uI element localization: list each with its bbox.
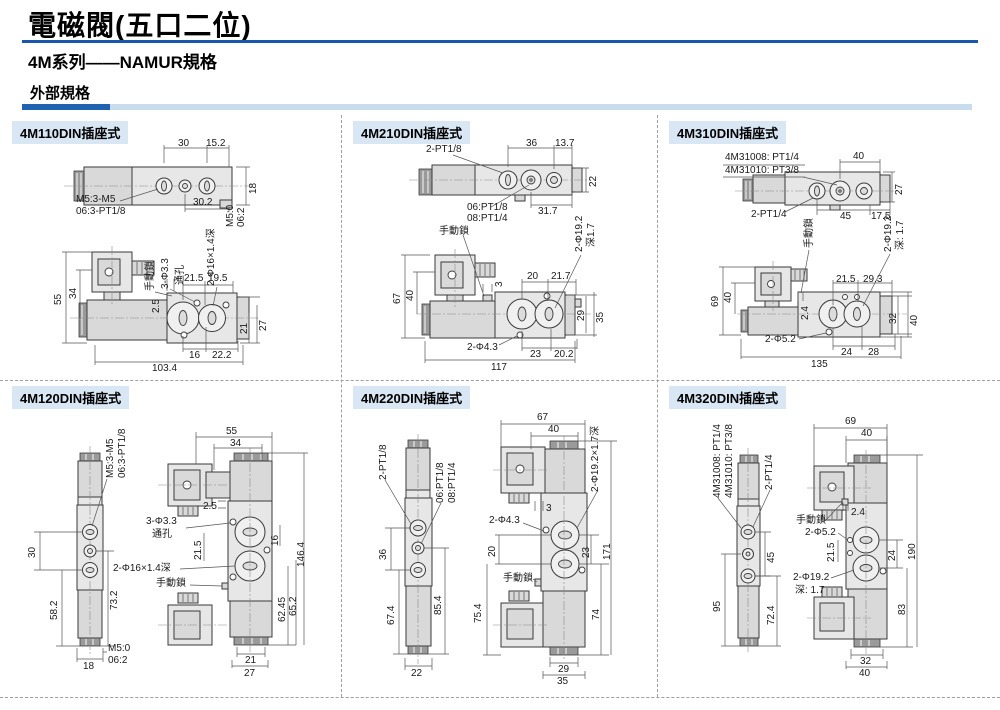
dim-label: 23 [582,547,592,558]
dim-label: 24 [888,550,898,561]
dim-label: 2.5 [203,502,217,512]
manual-override-label: 手動鎖 [805,218,815,248]
dim-label: 69 [711,296,721,307]
title-underline [22,40,978,43]
dim-label: 190 [908,543,918,560]
port-label: 08:PT1/4 [448,462,458,503]
technical-drawing-4m310 [657,115,1000,380]
dim-label: 19.5 [208,274,227,284]
hole-label: 3-Φ3.3 [161,258,171,289]
dim-label: 40 [859,669,870,679]
dim-label: 67 [537,413,548,423]
dim-label: 69 [845,417,856,427]
dim-label: 16 [189,351,200,361]
dim-label: 31.7 [538,207,557,217]
dim-label: 75.4 [474,604,484,623]
dim-label: 62.45 [278,597,288,622]
dim-label: 35 [596,312,606,323]
dim-label: 27 [895,184,905,195]
dim-label: 2.4 [801,306,811,320]
section-heading: 外部規格 [30,82,90,103]
dim-label: 58.2 [50,601,60,620]
dim-label: 27 [259,320,269,331]
dim-label: 18 [249,183,259,194]
port-label: 4M31008: PT1/4 [713,424,723,498]
port-label: 06:PT1/8 [467,203,508,213]
dim-label: 40 [861,429,872,439]
hole-label: 2-Φ5.2 [805,528,836,538]
dim-label: 2.5 [152,299,162,313]
dim-label: 73.2 [110,591,120,610]
section-underline [22,104,972,110]
grid-separator [0,697,1000,698]
port-label: 08:PT1/4 [467,214,508,224]
dim-label: 24 [841,348,852,358]
hole-label: 2-Φ5.2 [765,335,796,345]
dim-label: 18 [83,662,94,672]
dim-label: 3 [546,504,552,514]
dim-label: 13.7 [555,139,574,149]
port-label: M5:3-M5 [106,439,116,478]
dim-label: 67 [393,293,403,304]
hole-label: 2-Φ19.2 [884,216,894,252]
hole-label: 3-Φ3.3 [146,517,177,527]
panel-title: 4M220DIN插座式 [353,386,470,409]
dim-label: 21 [240,323,250,334]
dim-label: 117 [491,363,507,373]
panel-4m110: 4M110DIN插座式 30 15.2 18 30.2 M5:3-M5 06:3… [0,115,341,380]
panel-title: 4M210DIN插座式 [353,121,470,144]
dim-label: 30.2 [193,198,212,208]
technical-drawing-4m110 [0,115,341,380]
dim-label: 36 [379,549,389,560]
dim-label: 146.4 [297,542,307,567]
dim-label: 20 [488,546,498,557]
port-label: 2-PT1/4 [765,454,775,490]
dim-label: 22.2 [212,351,231,361]
technical-drawing-4m320 [657,380,1000,697]
dim-label: 103.4 [152,364,177,374]
dim-label: 40 [724,292,734,303]
dim-label: 36 [526,139,537,149]
dim-label: 95 [713,601,723,612]
port-label: 06:PT1/8 [436,462,446,503]
dim-label: 83 [898,604,908,615]
hole-label: 深1.7 [587,223,597,247]
hole-label: 深: 1.7 [795,586,824,596]
hole-label: 2-Φ4.3 [467,343,498,353]
series-subtitle: 4M系列——NAMUR規格 [28,48,217,73]
panel-4m310: 4M310DIN插座式 4M31008: PT1/4 4M31010: PT3/… [657,115,1000,380]
port-label: 4M31010: PT3/8 [725,424,735,498]
dim-label: 40 [406,290,416,301]
hole-label: 2-Φ16×1.4深 [113,564,171,574]
manual-override-label: 手動鎖 [146,261,156,291]
dim-label: 65.2 [289,597,299,616]
dim-label: 171 [603,543,613,560]
port-label: 2-PT1/8 [379,444,389,480]
dim-label: 67.4 [387,606,397,625]
dim-label: 34 [69,288,79,299]
port-label: 4M31010: PT3/8 [725,166,799,176]
dim-label: 23 [530,350,541,360]
dim-label: 85.4 [434,596,444,615]
hole-label: 深: 1.7 [896,221,906,250]
technical-drawing-4m210 [341,115,657,380]
dim-label: 30 [178,139,189,149]
dim-label: 55 [54,294,64,305]
dim-label: 40 [853,152,864,162]
dim-label: 2.4 [851,508,865,518]
port-label: 2-PT1/8 [426,145,462,155]
panel-title: 4M120DIN插座式 [12,386,129,409]
panel-4m120: 4M120DIN插座式 M5:3-M5 06:3-PT1/8 30 58.2 7… [0,380,341,697]
dim-label: 35 [557,677,568,687]
technical-drawing-4m220 [341,380,657,697]
dim-label: 34 [230,439,241,449]
dim-label: 16 [271,535,281,546]
panel-4m220: 4M220DIN插座式 2-PT1/8 06:PT1/8 08:PT1/4 36… [341,380,657,697]
dim-label: 72.4 [767,606,777,625]
dim-label: 21.5 [194,541,204,560]
port-label: 06:2 [237,208,247,227]
port-label: 4M31008: PT1/4 [725,153,799,163]
hole-label: 2-Φ19.2 [575,216,585,252]
dim-label: 135 [811,360,828,370]
dim-label: 45 [840,212,851,222]
dim-label: 20 [527,272,538,282]
manual-override-label: 手動鎖 [503,574,533,584]
dim-label: 20.2 [554,350,573,360]
dim-label: 21.7 [551,272,570,282]
dim-label: 55 [226,427,237,437]
dim-label: 32 [860,657,871,667]
dim-label: 30 [28,547,38,558]
dim-label: 29 [577,310,587,321]
hole-label: 2-Φ19.2×1.7深 [591,426,601,492]
dim-label: 28 [868,348,879,358]
port-label: 06:3-PT1/8 [76,207,125,217]
port-label: M5:0 [108,644,130,654]
dim-label: 21.5 [836,275,855,285]
section-underline-accent [22,104,110,110]
dim-label: 21 [245,656,256,666]
panel-title: 4M110DIN插座式 [12,121,128,144]
dim-label: 74 [592,609,602,620]
panel-4m210: 4M210DIN插座式 2-PT1/8 36 13.7 22 06:PT1/8 … [341,115,657,380]
panel-title: 4M310DIN插座式 [669,121,786,144]
dim-label: 27 [244,669,255,679]
manual-override-label: 手動鎖 [156,579,186,589]
panel-title: 4M320DIN插座式 [669,386,786,409]
hole-label: 2-Φ19.2 [793,573,829,583]
dim-label: 40 [548,425,559,435]
dim-label: 22 [411,669,422,679]
dim-label: 45 [767,552,777,563]
dim-label: 21.5 [184,274,203,284]
dim-label: 3 [495,281,505,287]
dim-label: 40 [910,315,920,326]
dim-label: 22 [589,176,599,187]
dim-label: 29.3 [863,275,882,285]
dim-label: 21.5 [827,543,837,562]
port-label: 2-PT1/4 [751,210,787,220]
dim-label: 29 [558,665,569,675]
dim-label: 15.2 [206,139,225,149]
manual-override-label: 手動鎖 [439,227,469,237]
panel-4m320: 4M320DIN插座式 4M31008: PT1/4 4M31010: PT3/… [657,380,1000,697]
catalog-page: 電磁閥(五口二位) 4M系列——NAMUR規格 外部規格 [0,0,1000,710]
dim-label: 32 [889,313,899,324]
port-label: M5:3-M5 [76,195,115,205]
hole-label: 通孔 [152,530,172,540]
page-title: 電磁閥(五口二位) [28,4,252,44]
port-label: M5:0 [226,205,236,227]
port-label: 06:2 [108,656,127,666]
hole-label: 2-Φ4.3 [489,516,520,526]
port-label: 06:3-PT1/8 [118,429,128,478]
manual-override-label: 手動鎖 [796,516,826,526]
